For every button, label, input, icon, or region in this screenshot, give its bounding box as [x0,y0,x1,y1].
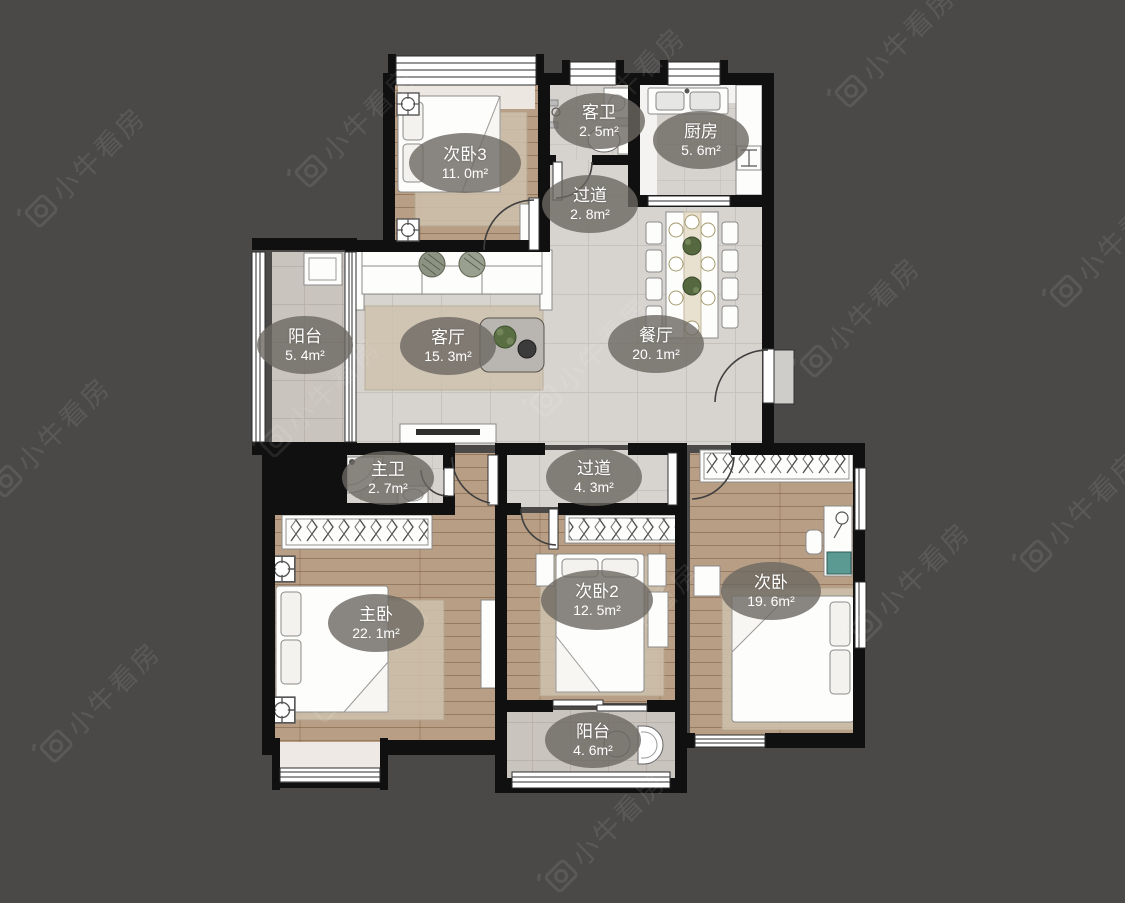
room-label-hallway-lower: 过道 4. 3m² [546,448,642,506]
room-label-master-bedroom: 主卧 22. 1m² [328,594,424,652]
room-label-hallway-upper: 过道 2. 8m² [542,175,638,233]
room-label-bedroom: 次卧 19. 6m² [721,562,821,620]
room-label-living-room: 客厅 15. 3m² [400,317,496,375]
room-label-dining-room: 餐厅 20. 1m² [608,315,704,373]
room-label-balcony-bottom: 阳台 4. 6m² [545,712,641,768]
room-labels: 次卧3 11. 0m² 客卫 2. 5m² 厨房 5. 6m² 过道 2. 8m… [0,0,1125,844]
room-label-bedroom3: 次卧3 11. 0m² [409,133,521,193]
room-label-kitchen: 厨房 5. 6m² [653,111,749,169]
room-label-master-bathroom: 主卫 2. 7m² [342,451,434,505]
floorplan-canvas: 小牛看房 小牛看房 小牛看房 小牛看房 小牛看房 小牛看房 小牛看房 小牛看房 … [0,0,1125,844]
niu-logo-icon [543,858,580,895]
room-label-balcony-left: 阳台 5. 4m² [257,316,353,374]
room-label-bedroom2: 次卧2 12. 5m² [541,570,653,630]
room-label-guest-bathroom: 客卫 2. 5m² [553,93,645,149]
